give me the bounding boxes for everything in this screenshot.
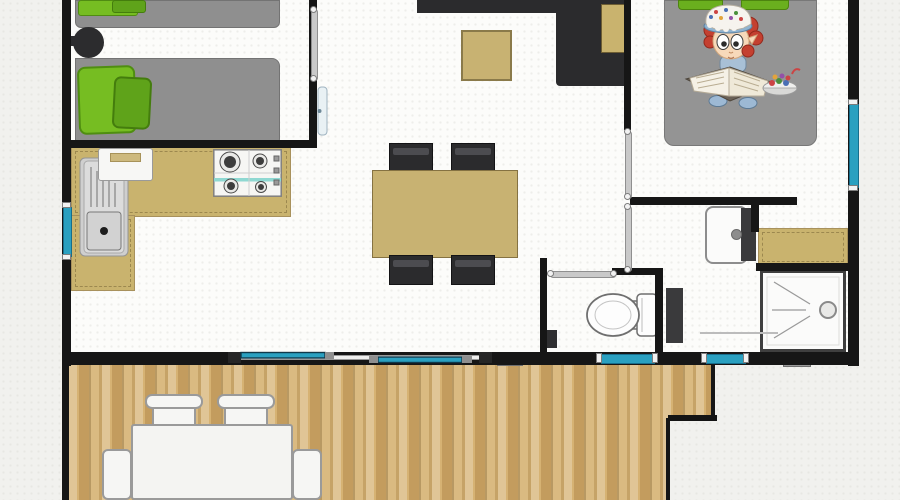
wall-bedroom1-south [62, 140, 314, 148]
patio-chair-right [292, 449, 322, 500]
window-left [62, 202, 71, 260]
door-cap [624, 203, 631, 210]
door-cap [624, 193, 631, 200]
wall-living-east [624, 0, 631, 130]
bathroom-cabinet [666, 288, 683, 343]
window-right [848, 99, 858, 191]
chair-cushion [455, 148, 490, 155]
window-glass [601, 354, 655, 364]
window-cap [848, 185, 858, 191]
toilet [584, 292, 660, 338]
patio-door-glyph [228, 350, 492, 365]
door-slide-living-a [624, 128, 631, 200]
deck-left-edge [62, 366, 69, 500]
chair-cushion [393, 148, 428, 155]
cabinet-handle [110, 153, 142, 162]
window-wc [596, 353, 658, 363]
sliding-door-panel [625, 131, 632, 199]
chair-cushion [393, 260, 428, 267]
wall-bath-mid [756, 263, 848, 271]
door-slide-wc [547, 269, 617, 277]
window-cap [62, 254, 71, 260]
sliding-door-panel [625, 206, 632, 272]
wall-wc-left [540, 258, 547, 353]
window-bath [701, 353, 749, 363]
shower [760, 270, 846, 352]
pillow-bottom-b [112, 76, 153, 130]
window-cap [848, 99, 858, 105]
door-cap [624, 128, 631, 135]
deck-step-edge [668, 415, 717, 421]
door-cap [310, 6, 317, 13]
door-leaf-bedroom1 [317, 86, 328, 136]
door-slide-living-b [624, 203, 631, 273]
door-cap [610, 270, 617, 277]
wall-bedroom2-south [630, 197, 797, 205]
window-cap [596, 353, 602, 363]
pillow-top-b [112, 0, 146, 13]
window-cap [743, 353, 749, 363]
sliding-door-panel [550, 271, 616, 278]
gas-hob [213, 149, 282, 197]
reading-child-illustration [668, 4, 803, 118]
window-glass [63, 207, 72, 257]
door-cap [310, 75, 317, 82]
chair-cushion [455, 260, 490, 267]
dining-chair-2 [451, 143, 495, 173]
wall-left [62, 0, 71, 366]
toilet-glyph [584, 292, 660, 338]
patio-sliding-door [228, 350, 492, 365]
window-cap [62, 202, 71, 208]
patio-chair-left [102, 449, 132, 500]
dining-chair-4 [451, 255, 495, 285]
kitchen-cabinet-white [98, 148, 153, 181]
sliding-door-panel [311, 9, 318, 81]
door-cap [547, 270, 554, 277]
coffee-table [461, 30, 512, 81]
bedside-stool [73, 27, 104, 58]
door-slide-bedroom1 [309, 6, 317, 82]
dining-table [372, 170, 518, 258]
bathroom-counter [758, 228, 848, 266]
dining-chair-1 [389, 143, 433, 173]
patio-table [131, 424, 293, 500]
window-glass [706, 354, 746, 364]
washbasin-tap [731, 229, 742, 240]
window-glass [849, 104, 859, 188]
floor-plan [0, 0, 900, 500]
door-leaf-glyph [317, 86, 328, 136]
shower-glyph [760, 270, 846, 352]
reading-child-glyph [668, 4, 803, 118]
dining-chair-3 [389, 255, 433, 285]
stove-glyph [213, 149, 282, 197]
screenshot-root: { "canvas": {"w": 900, "h": 500, "backgr… [0, 0, 900, 500]
wall-bath-stub [751, 197, 759, 232]
door-cap [624, 266, 631, 273]
window-cap [701, 353, 707, 363]
bath-mat-line [700, 332, 778, 334]
window-cap [652, 353, 658, 363]
wall-wc-right [655, 268, 663, 353]
